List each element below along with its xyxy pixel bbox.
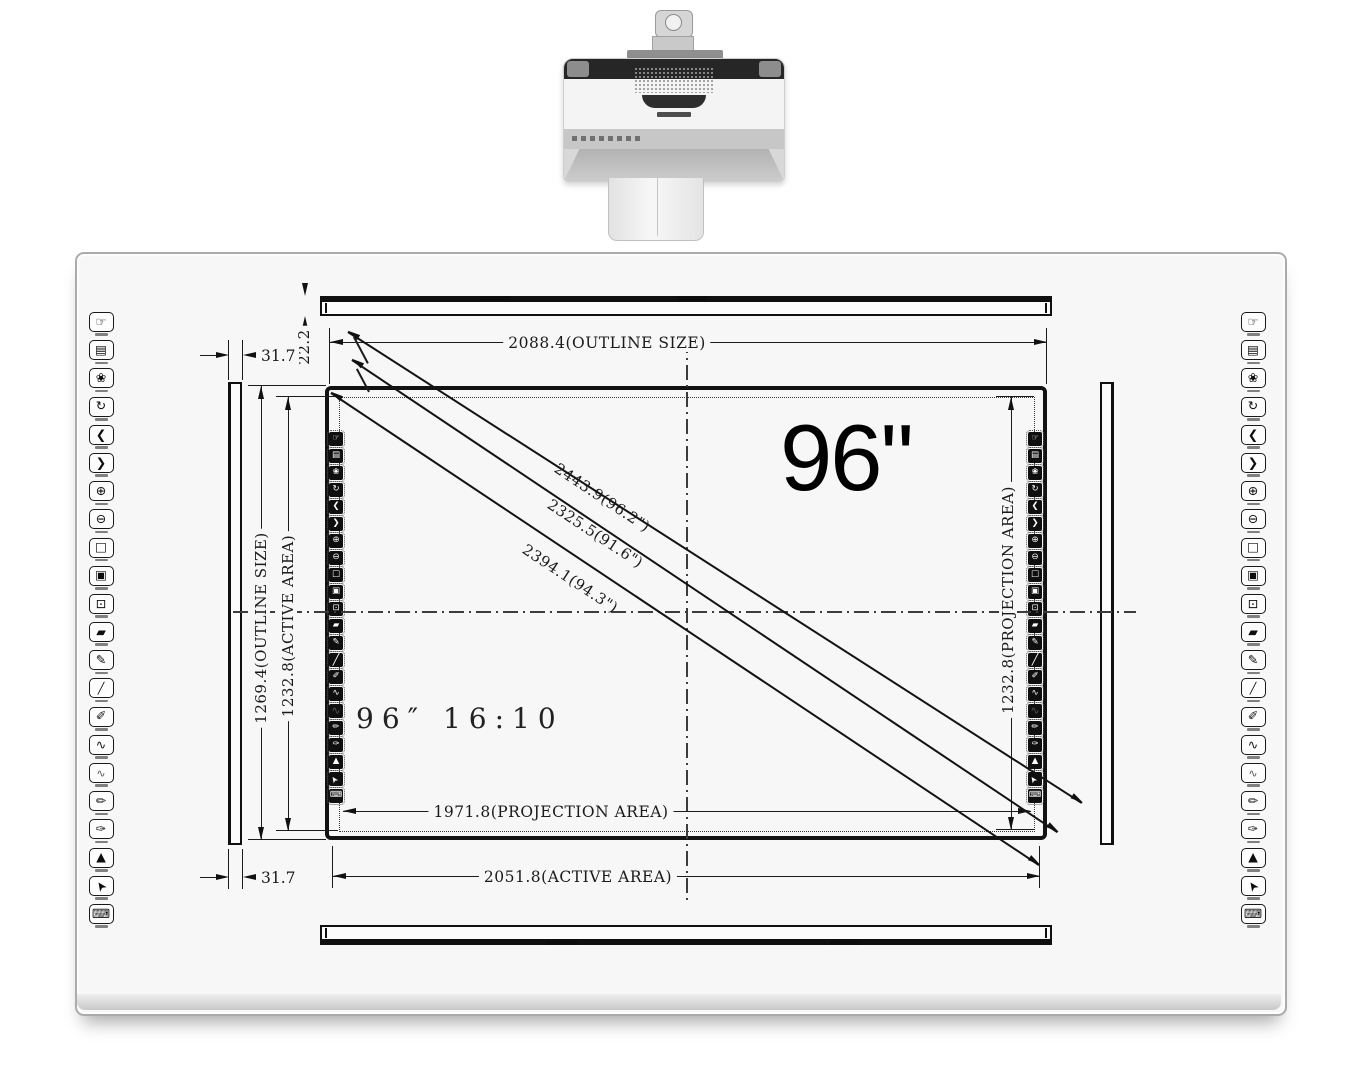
zoom-out-icon: ⊖ xyxy=(1248,513,1258,526)
refresh-area-hotkey[interactable]: ↻ xyxy=(1028,483,1042,497)
marker-pen-icon: ✎ xyxy=(1031,637,1038,647)
projector-top-right-block xyxy=(759,61,781,77)
screen-frame-3-hotkey[interactable]: ⊡ xyxy=(329,602,343,616)
board-hotkey-strip-left: ☞▤❀↻❮❯⊕⊖□▣⊡▰✎╱✐∿∿✏✑▲➤⌨ xyxy=(329,432,344,806)
toolbar-item-label xyxy=(95,672,108,675)
toolbar-item: ↻ xyxy=(86,397,116,422)
curve-bold-button[interactable]: ∿ xyxy=(89,735,114,755)
spotlight-icon: ▲ xyxy=(1248,851,1258,864)
zoom-in-icon: ⊕ xyxy=(1248,485,1258,498)
toolbar-item: ▲ xyxy=(1238,848,1268,873)
toolbar-item-label xyxy=(95,784,108,787)
refresh-area-icon: ↻ xyxy=(96,400,106,413)
curve-thin-button[interactable]: ∿ xyxy=(89,763,114,783)
toolbar-item: ✐ xyxy=(86,707,116,732)
toolbar-item: ▰ xyxy=(1238,622,1268,647)
screen-frame-2-button[interactable]: ▣ xyxy=(89,566,114,586)
prev-page-icon: ❮ xyxy=(1248,429,1258,442)
eraser-icon: ▰ xyxy=(333,620,340,630)
zoom-out-icon: ⊖ xyxy=(332,552,339,562)
curve-bold-hotkey[interactable]: ∿ xyxy=(1028,687,1042,701)
panel-bottom-edge xyxy=(77,994,1281,1010)
screen-frame-2-hotkey[interactable]: ▣ xyxy=(329,585,343,599)
rail-cap xyxy=(325,928,327,938)
screen-frame-1-hotkey[interactable]: □ xyxy=(1028,568,1042,582)
screen-frame-3-icon: ⊡ xyxy=(96,598,106,611)
toolbar-item-label xyxy=(95,587,108,590)
refresh-area-icon: ↻ xyxy=(1248,400,1258,413)
touch-locate-icon: ☞ xyxy=(332,433,340,443)
pen-red-icon: ✑ xyxy=(332,739,339,749)
arrow-down-icon xyxy=(302,283,308,296)
toolbar-item: ⊕ xyxy=(86,481,116,506)
rail-mount-tab xyxy=(830,940,860,945)
rail-cap xyxy=(1045,303,1047,313)
toolbar-item-label xyxy=(1247,756,1260,759)
projector-mirror-housing xyxy=(564,149,784,181)
next-page-hotkey[interactable]: ❯ xyxy=(329,517,343,531)
zoom-out-icon: ⊖ xyxy=(96,513,106,526)
toolbar-item: ⊕ xyxy=(1238,481,1268,506)
toolbar-item: ➤ xyxy=(1238,876,1268,901)
pen-red-icon: ✑ xyxy=(1031,739,1038,749)
screen-frame-1-button[interactable]: □ xyxy=(1241,538,1266,558)
projector-brand-logo xyxy=(657,112,691,117)
eraser-hotkey[interactable]: ▰ xyxy=(1028,619,1042,633)
arrow-right-icon xyxy=(216,352,229,358)
toolbar-item: ⌨ xyxy=(1238,904,1268,929)
zoom-out-icon: ⊖ xyxy=(1031,552,1038,562)
toolbar-item-label xyxy=(95,474,108,477)
prev-page-icon: ❮ xyxy=(332,501,339,511)
toolbar-item-label xyxy=(1247,474,1260,477)
dim-outline-height: 1269.4(OUTLINE SIZE) xyxy=(252,528,270,727)
extension-line xyxy=(1039,846,1040,888)
eraser-icon: ▰ xyxy=(1032,620,1039,630)
thin-pen-icon: ╱ xyxy=(98,683,105,694)
keyboard-icon: ⌨ xyxy=(1029,790,1041,800)
toolbar-item-label xyxy=(95,700,108,703)
pencil-button[interactable]: ✏ xyxy=(89,791,114,811)
aspect-ratio-label: 96″ 16:10 xyxy=(356,702,564,735)
touch-locate-icon: ☞ xyxy=(95,316,106,329)
toolbar-item: ❮ xyxy=(1238,425,1268,450)
screen-frame-3-button[interactable]: ⊡ xyxy=(1241,594,1266,614)
print-button[interactable]: ▤ xyxy=(1241,340,1266,360)
toolbar-item: ❀ xyxy=(86,368,116,393)
curve-thin-hotkey[interactable]: ∿ xyxy=(329,704,343,718)
cursor-icon: ➤ xyxy=(1245,878,1261,894)
thin-pen-icon: ╱ xyxy=(333,653,340,666)
toolbar-item-label xyxy=(1247,333,1260,336)
spotlight-hotkey[interactable]: ▲ xyxy=(1028,755,1042,769)
left-side-rail xyxy=(228,382,242,845)
refresh-area-icon: ↻ xyxy=(332,484,339,494)
projector-vent-grille xyxy=(634,67,714,93)
toolbar-item: ∿ xyxy=(86,735,116,760)
toolbar-item: ▣ xyxy=(1238,566,1268,591)
pen-red-hotkey[interactable]: ✑ xyxy=(1028,738,1042,752)
projector-wall-column xyxy=(608,178,704,241)
brush-pen-hotkey[interactable]: ✐ xyxy=(329,670,343,684)
curve-bold-icon: ∿ xyxy=(332,688,339,698)
toolbar-item: ▤ xyxy=(86,340,116,365)
screen-frame-2-hotkey[interactable]: ▣ xyxy=(1028,585,1042,599)
pencil-icon: ✏ xyxy=(1031,722,1038,732)
toolbar-item: ☞ xyxy=(86,312,116,337)
touch-locate-button[interactable]: ☞ xyxy=(1241,312,1266,332)
prev-page-button[interactable]: ❮ xyxy=(1241,425,1266,445)
toolbar-item: ∿ xyxy=(1238,763,1268,788)
extension-line xyxy=(332,846,333,888)
brush-pen-button[interactable]: ✐ xyxy=(89,707,114,727)
prev-page-icon: ❮ xyxy=(96,429,106,442)
dim-rail-width-bottom: 31.7 xyxy=(258,869,299,887)
touch-locate-hotkey[interactable]: ☞ xyxy=(329,432,343,446)
product-dimension-diagram: ☞▤❀↻❮❯⊕⊖□▣⊡▰✎╱✐∿∿✏✑▲➤⌨ ☞▤❀↻❮❯⊕⊖□▣⊡▰✎╱✐∿∿… xyxy=(0,0,1356,1080)
spotlight-icon: ▲ xyxy=(1032,756,1039,766)
toolbar-item: □ xyxy=(1238,538,1268,563)
arrow-left-icon xyxy=(330,339,343,345)
print-hotkey[interactable]: ▤ xyxy=(329,449,343,463)
print-icon: ▤ xyxy=(1247,344,1259,357)
toolbar-item: ⊖ xyxy=(1238,509,1268,534)
brush-pen-button[interactable]: ✐ xyxy=(1241,707,1266,727)
pencil-hotkey[interactable]: ✏ xyxy=(1028,721,1042,735)
prev-page-hotkey[interactable]: ❮ xyxy=(1028,500,1042,514)
toolbar-item-label xyxy=(95,728,108,731)
screen-frame-2-icon: ▣ xyxy=(332,586,340,596)
rail-cap xyxy=(1045,928,1047,938)
arrow-down-icon xyxy=(285,818,291,831)
curve-bold-icon: ∿ xyxy=(1031,688,1038,698)
toolbar-item-label xyxy=(95,531,108,534)
curve-thin-button[interactable]: ∿ xyxy=(1241,763,1266,783)
extension-line xyxy=(242,340,243,380)
settings-flower-button[interactable]: ❀ xyxy=(1241,368,1266,388)
eraser-button[interactable]: ▰ xyxy=(89,622,114,642)
toolbar-item: ▤ xyxy=(1238,340,1268,365)
pen-red-icon: ✑ xyxy=(96,823,106,836)
screen-frame-1-icon: □ xyxy=(1247,541,1259,554)
zoom-in-hotkey[interactable]: ⊕ xyxy=(1028,534,1042,548)
toolbar-item: ✎ xyxy=(86,650,116,675)
cursor-icon: ➤ xyxy=(328,772,343,786)
thin-pen-button[interactable]: ╱ xyxy=(1241,678,1266,698)
zoom-in-icon: ⊕ xyxy=(1031,535,1038,545)
board-hotkey-strip-right: ☞▤❀↻❮❯⊕⊖□▣⊡▰✎╱✐∿∿✏✑▲➤⌨ xyxy=(1028,432,1043,806)
dim-projection-height: 1232.8(PROJECTION AREA) xyxy=(999,482,1017,718)
toolbar-item: ▰ xyxy=(86,622,116,647)
print-icon: ▤ xyxy=(332,450,340,460)
settings-flower-hotkey[interactable]: ❀ xyxy=(329,466,343,480)
projector-lens-icon xyxy=(642,95,706,108)
toolbar-item-label xyxy=(95,418,108,421)
toolbar-item: ✑ xyxy=(86,819,116,844)
arrow-right-icon xyxy=(1027,873,1040,879)
touch-locate-hotkey[interactable]: ☞ xyxy=(1028,432,1042,446)
toolbar-item: ✏ xyxy=(86,791,116,816)
toolbar-item-label xyxy=(1247,700,1260,703)
toolbar-item-label xyxy=(1247,446,1260,449)
next-page-icon: ❯ xyxy=(1248,457,1258,470)
next-page-icon: ❯ xyxy=(1031,518,1038,528)
keyboard-icon: ⌨ xyxy=(1244,908,1262,921)
settings-flower-icon: ❀ xyxy=(96,372,106,385)
pencil-icon: ✏ xyxy=(332,722,339,732)
toolbar-item-label xyxy=(95,643,108,646)
next-page-icon: ❯ xyxy=(332,518,339,528)
toolbar-item-label xyxy=(95,756,108,759)
dim-line xyxy=(333,876,1040,877)
toolbar-item: ❯ xyxy=(86,453,116,478)
toolbar-item: ⊡ xyxy=(86,594,116,619)
screen-frame-1-icon: □ xyxy=(332,569,340,579)
keyboard-button[interactable]: ⌨ xyxy=(1241,904,1266,924)
next-page-button[interactable]: ❯ xyxy=(1241,453,1266,473)
refresh-area-button[interactable]: ↻ xyxy=(1241,397,1266,417)
brush-pen-icon: ✐ xyxy=(1248,710,1258,723)
spotlight-button[interactable]: ▲ xyxy=(1241,848,1266,868)
toolbar-item-label xyxy=(95,362,108,365)
toolbar-item-label xyxy=(95,841,108,844)
screen-frame-2-button[interactable]: ▣ xyxy=(1241,566,1266,586)
toolbar-item: ❀ xyxy=(1238,368,1268,393)
marker-pen-icon: ✎ xyxy=(332,637,339,647)
curve-bold-hotkey[interactable]: ∿ xyxy=(329,687,343,701)
spotlight-button[interactable]: ▲ xyxy=(89,848,114,868)
thin-pen-icon: ╱ xyxy=(1032,653,1039,666)
keyboard-hotkey[interactable]: ⌨ xyxy=(1028,789,1042,803)
toolbar-item-label xyxy=(1247,418,1260,421)
toolbar-item-label xyxy=(95,390,108,393)
pen-red-button[interactable]: ✑ xyxy=(89,819,114,839)
cursor-button[interactable]: ➤ xyxy=(1241,876,1266,896)
cursor-icon: ➤ xyxy=(93,878,109,894)
zoom-out-hotkey[interactable]: ⊖ xyxy=(329,551,343,565)
cursor-hotkey[interactable]: ➤ xyxy=(329,772,343,786)
toolbar-item: ✐ xyxy=(1238,707,1268,732)
marker-pen-icon: ✎ xyxy=(96,654,106,667)
extension-line xyxy=(996,396,1034,397)
zoom-out-button[interactable]: ⊖ xyxy=(89,509,114,529)
pencil-icon: ✏ xyxy=(1248,795,1258,808)
toolbar-item: ⌨ xyxy=(86,904,116,929)
thin-pen-button[interactable]: ╱ xyxy=(89,678,114,698)
cursor-button[interactable]: ➤ xyxy=(89,876,114,896)
next-page-button[interactable]: ❯ xyxy=(89,453,114,473)
eraser-icon: ▰ xyxy=(1248,626,1258,639)
pen-red-button[interactable]: ✑ xyxy=(1241,819,1266,839)
screen-frame-2-icon: ▣ xyxy=(1247,569,1259,582)
touch-locate-button[interactable]: ☞ xyxy=(89,312,114,332)
toolbar-item-label xyxy=(1247,503,1260,506)
projector-body xyxy=(563,58,785,182)
toolbar-item-label xyxy=(1247,784,1260,787)
refresh-area-hotkey[interactable]: ↻ xyxy=(329,483,343,497)
projector-port-row xyxy=(572,136,642,141)
touch-locate-icon: ☞ xyxy=(1031,433,1039,443)
projector-mount-knob xyxy=(655,10,693,38)
zoom-in-button[interactable]: ⊕ xyxy=(1241,481,1266,501)
curve-thin-icon: ∿ xyxy=(331,704,340,717)
rail-mount-tab xyxy=(677,296,707,301)
spotlight-icon: ▲ xyxy=(96,851,106,864)
settings-flower-icon: ❀ xyxy=(332,467,339,477)
screen-frame-1-icon: □ xyxy=(95,541,107,554)
toolbar-item-label xyxy=(95,446,108,449)
marker-pen-hotkey[interactable]: ✎ xyxy=(329,636,343,650)
hotkey-toolbar-left: ☞▤❀↻❮❯⊕⊖□▣⊡▰✎╱✐∿∿✏✑▲➤⌨ xyxy=(86,312,116,932)
toolbar-item: ∿ xyxy=(86,763,116,788)
refresh-area-icon: ↻ xyxy=(1031,484,1038,494)
screen-frame-1-button[interactable]: □ xyxy=(89,538,114,558)
thin-pen-icon: ╱ xyxy=(1250,683,1257,694)
settings-flower-icon: ❀ xyxy=(1248,372,1258,385)
dim-rail-width-top: 31.7 xyxy=(258,347,299,365)
pencil-hotkey[interactable]: ✏ xyxy=(329,721,343,735)
toolbar-item-label xyxy=(1247,559,1260,562)
pen-red-hotkey[interactable]: ✑ xyxy=(329,738,343,752)
curve-bold-icon: ∿ xyxy=(96,739,106,752)
screen-frame-3-button[interactable]: ⊡ xyxy=(89,594,114,614)
refresh-area-button[interactable]: ↻ xyxy=(89,397,114,417)
curve-thin-icon: ∿ xyxy=(96,768,105,779)
zoom-out-hotkey[interactable]: ⊖ xyxy=(1028,551,1042,565)
keyboard-button[interactable]: ⌨ xyxy=(89,904,114,924)
arrow-left-icon xyxy=(243,874,256,880)
rail-cap xyxy=(325,303,327,313)
toolbar-item-label xyxy=(1247,362,1260,365)
pencil-button[interactable]: ✏ xyxy=(1241,791,1266,811)
toolbar-item-label xyxy=(1247,869,1260,872)
toolbar-item-label xyxy=(1247,643,1260,646)
prev-page-hotkey[interactable]: ❮ xyxy=(329,500,343,514)
toolbar-item: ✎ xyxy=(1238,650,1268,675)
settings-flower-hotkey[interactable]: ❀ xyxy=(1028,466,1042,480)
dim-active-height: 1232.8(ACTIVE AREA) xyxy=(279,531,297,721)
toolbar-item-label xyxy=(1247,841,1260,844)
toolbar-item: ⊡ xyxy=(1238,594,1268,619)
arrow-down-icon xyxy=(258,827,264,840)
toolbar-item: ∿ xyxy=(1238,735,1268,760)
prev-page-button[interactable]: ❮ xyxy=(89,425,114,445)
pencil-icon: ✏ xyxy=(96,795,106,808)
brush-pen-icon: ✐ xyxy=(1031,671,1038,681)
hotkey-toolbar-right: ☞▤❀↻❮❯⊕⊖□▣⊡▰✎╱✐∿∿✏✑▲➤⌨ xyxy=(1238,312,1268,932)
zoom-in-icon: ⊕ xyxy=(96,485,106,498)
toolbar-item: ➤ xyxy=(86,876,116,901)
screen-frame-1-hotkey[interactable]: □ xyxy=(329,568,343,582)
keyboard-icon: ⌨ xyxy=(330,790,342,800)
curve-thin-hotkey[interactable]: ∿ xyxy=(1028,704,1042,718)
thin-pen-hotkey[interactable]: ╱ xyxy=(1028,653,1042,667)
dim-outline-width: 2088.4(OUTLINE SIZE) xyxy=(503,334,710,352)
toolbar-item: ✏ xyxy=(1238,791,1268,816)
zoom-in-icon: ⊕ xyxy=(332,535,339,545)
touch-locate-icon: ☞ xyxy=(1247,316,1258,329)
arrow-right-icon xyxy=(216,874,229,880)
eraser-hotkey[interactable]: ▰ xyxy=(329,619,343,633)
dim-line xyxy=(200,355,217,356)
print-hotkey[interactable]: ▤ xyxy=(1028,449,1042,463)
top-rail xyxy=(320,296,1052,316)
print-button[interactable]: ▤ xyxy=(89,340,114,360)
toolbar-item-label xyxy=(95,813,108,816)
toolbar-item: □ xyxy=(86,538,116,563)
toolbar-item-label xyxy=(1247,615,1260,618)
toolbar-item-label xyxy=(1247,672,1260,675)
projector-lower-face xyxy=(564,149,784,181)
eraser-icon: ▰ xyxy=(96,626,106,639)
keyboard-hotkey[interactable]: ⌨ xyxy=(329,789,343,803)
brush-pen-icon: ✐ xyxy=(332,671,339,681)
spotlight-icon: ▲ xyxy=(333,756,340,766)
arrow-up-icon xyxy=(285,397,291,410)
curve-bold-icon: ∿ xyxy=(1248,739,1258,752)
eraser-button[interactable]: ▰ xyxy=(1241,622,1266,642)
dim-active-width: 2051.8(ACTIVE AREA) xyxy=(479,868,677,886)
toolbar-item-label xyxy=(1247,728,1260,731)
toolbar-item-label xyxy=(1247,897,1260,900)
toolbar-item: ▣ xyxy=(86,566,116,591)
toolbar-item: ❮ xyxy=(86,425,116,450)
toolbar-item-label xyxy=(95,897,108,900)
toolbar-item: ✑ xyxy=(1238,819,1268,844)
curve-bold-button[interactable]: ∿ xyxy=(1241,735,1266,755)
rail-mount-tab xyxy=(547,940,577,945)
zoom-in-button[interactable]: ⊕ xyxy=(89,481,114,501)
screen-frame-3-hotkey[interactable]: ⊡ xyxy=(1028,602,1042,616)
screen-frame-2-icon: ▣ xyxy=(95,569,107,582)
projector-top-left-block xyxy=(567,61,589,77)
toolbar-item-label xyxy=(95,333,108,336)
spotlight-hotkey[interactable]: ▲ xyxy=(329,755,343,769)
toolbar-item-label xyxy=(95,503,108,506)
pen-red-icon: ✑ xyxy=(1248,823,1258,836)
settings-flower-button[interactable]: ❀ xyxy=(89,368,114,388)
thin-pen-hotkey[interactable]: ╱ xyxy=(329,653,343,667)
curve-thin-icon: ∿ xyxy=(1030,704,1039,717)
prev-page-icon: ❮ xyxy=(1031,501,1038,511)
toolbar-item-label xyxy=(95,615,108,618)
marker-pen-hotkey[interactable]: ✎ xyxy=(1028,636,1042,650)
extension-line xyxy=(329,328,330,384)
brush-pen-hotkey[interactable]: ✐ xyxy=(1028,670,1042,684)
bottom-rail xyxy=(320,925,1052,945)
toolbar-item: ▲ xyxy=(86,848,116,873)
marker-pen-button[interactable]: ✎ xyxy=(1241,650,1266,670)
toolbar-item: ⊖ xyxy=(86,509,116,534)
toolbar-item-label xyxy=(1247,390,1260,393)
extension-line xyxy=(228,849,229,889)
dim-projection-width: 1971.8(PROJECTION AREA) xyxy=(428,803,673,821)
zoom-out-button[interactable]: ⊖ xyxy=(1241,509,1266,529)
next-page-hotkey[interactable]: ❯ xyxy=(1028,517,1042,531)
settings-flower-icon: ❀ xyxy=(1031,467,1038,477)
rail-mount-tab xyxy=(480,296,510,301)
screen-frame-3-icon: ⊡ xyxy=(1248,598,1258,611)
extension-line xyxy=(996,829,1034,830)
print-icon: ▤ xyxy=(1031,450,1039,460)
marker-pen-button[interactable]: ✎ xyxy=(89,650,114,670)
zoom-in-hotkey[interactable]: ⊕ xyxy=(329,534,343,548)
extension-line xyxy=(1046,328,1047,384)
arrow-right-icon xyxy=(1034,339,1047,345)
right-side-rail xyxy=(1100,382,1114,845)
arrow-left-icon xyxy=(333,873,346,879)
toolbar-item: ↻ xyxy=(1238,397,1268,422)
